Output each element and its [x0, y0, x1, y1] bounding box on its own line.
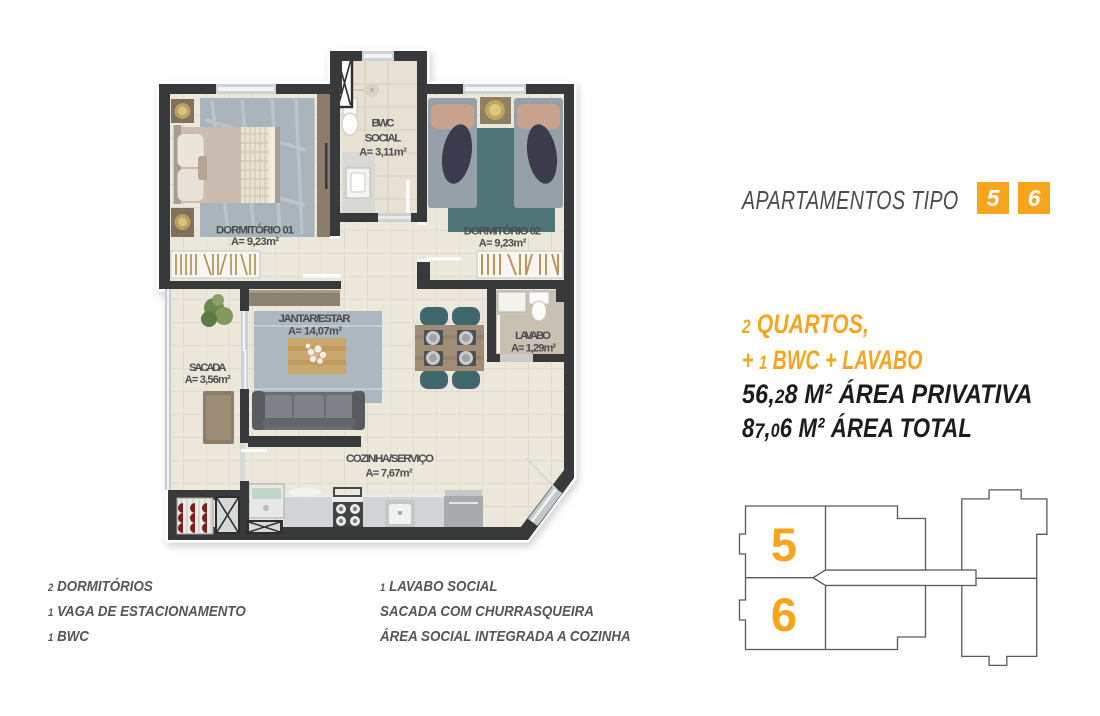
svg-text:DORMITÓRIO 02: DORMITÓRIO 02 [464, 225, 542, 238]
svg-text:JANTAR/ESTAR: JANTAR/ESTAR [279, 313, 351, 325]
svg-text:SOCIAL: SOCIAL [365, 133, 402, 145]
svg-text:A= 14,07m²: A= 14,07m² [288, 326, 342, 338]
svg-text:6: 6 [771, 588, 797, 641]
svg-text:DORMITÓRIO 01: DORMITÓRIO 01 [216, 224, 295, 237]
svg-text:5: 5 [771, 518, 797, 571]
svg-text:A= 9,23m²: A= 9,23m² [231, 236, 279, 248]
svg-text:SACADA: SACADA [189, 362, 227, 374]
svg-text:A= 9,23m²: A= 9,23m² [479, 238, 527, 250]
svg-text:A= 1,29m²: A= 1,29m² [511, 342, 556, 354]
svg-text:BWC: BWC [372, 118, 395, 130]
svg-text:LAVABO: LAVABO [515, 330, 551, 342]
svg-text:A= 3,11m²: A= 3,11m² [359, 147, 407, 159]
svg-text:A= 3,56m²: A= 3,56m² [185, 374, 231, 386]
svg-text:COZINHA/SERVIÇO: COZINHA/SERVIÇO [346, 453, 434, 465]
svg-text:A= 7,67m²: A= 7,67m² [366, 468, 413, 480]
